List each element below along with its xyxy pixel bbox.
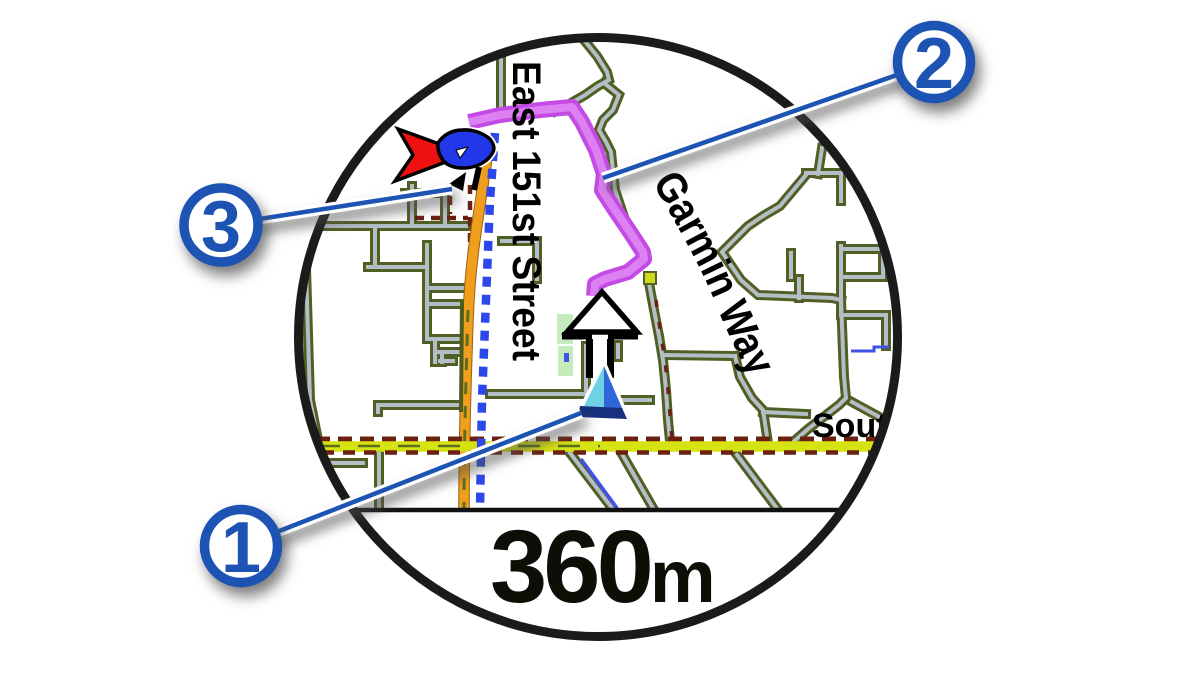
svg-text:2: 2 (914, 24, 954, 104)
svg-text:3: 3 (201, 187, 241, 267)
svg-text:East 151st Street: East 151st Street (504, 61, 548, 361)
svg-text:1: 1 (221, 508, 261, 588)
